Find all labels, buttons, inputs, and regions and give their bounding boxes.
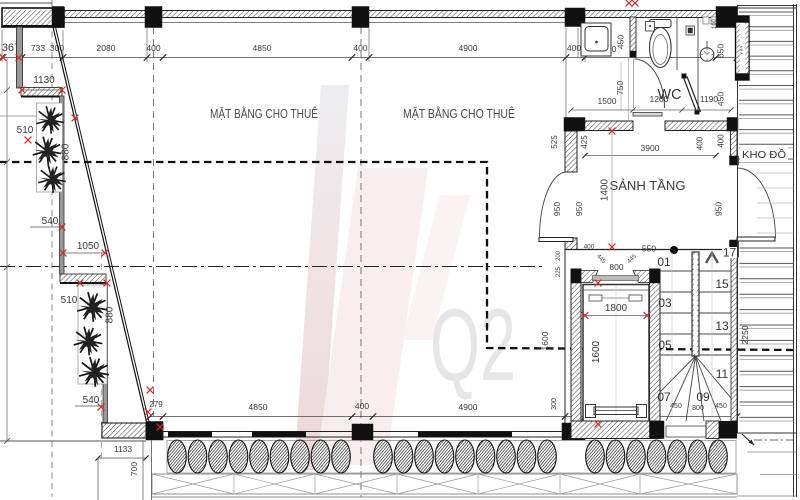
svg-text:03: 03 (658, 296, 672, 310)
svg-text:733: 733 (31, 43, 45, 53)
svg-text:1500: 1500 (598, 96, 617, 106)
svg-text:550: 550 (642, 244, 656, 254)
svg-text:SẢNH TẦNG: SẢNH TẦNG (610, 178, 686, 193)
svg-text:650: 650 (716, 44, 726, 58)
svg-text:1200: 1200 (650, 94, 669, 104)
svg-text:4850: 4850 (249, 402, 268, 412)
svg-text:4900: 4900 (459, 402, 478, 412)
svg-text:KHO ĐỒ: KHO ĐỒ (742, 148, 786, 161)
svg-text:∨∧∨: ∨∧∨ (739, 44, 744, 55)
svg-text:225: 225 (556, 266, 562, 277)
svg-text:1133: 1133 (114, 444, 133, 454)
svg-text:200: 200 (556, 250, 562, 261)
svg-text:450: 450 (715, 403, 727, 410)
svg-text:1130: 1130 (33, 75, 55, 86)
svg-text:17: 17 (723, 246, 737, 260)
svg-text:11: 11 (716, 367, 729, 381)
svg-text:800: 800 (692, 405, 704, 412)
svg-text:2250: 2250 (740, 325, 750, 344)
svg-text:400: 400 (567, 43, 581, 53)
svg-text:1600: 1600 (591, 340, 602, 363)
svg-text:400: 400 (584, 244, 595, 251)
svg-text:279: 279 (149, 400, 163, 409)
svg-text:Q2: Q2 (430, 288, 516, 402)
svg-text:950: 950 (714, 202, 724, 216)
svg-text:07: 07 (657, 390, 671, 404)
svg-text:2080: 2080 (97, 43, 116, 53)
svg-text:400: 400 (355, 401, 369, 411)
svg-text:400: 400 (696, 136, 705, 150)
svg-text:1800: 1800 (605, 303, 628, 314)
svg-text:MẶT BẰNG CHO THUÊ: MẶT BẰNG CHO THUÊ (403, 106, 515, 121)
svg-text:950: 950 (574, 202, 584, 216)
svg-text:510: 510 (61, 295, 78, 306)
svg-text:880: 880 (61, 143, 72, 160)
svg-text:05: 05 (658, 338, 672, 352)
svg-text:MẶT BẰNG CHO THUÊ: MẶT BẰNG CHO THUÊ (210, 106, 318, 121)
svg-text:4850: 4850 (253, 43, 272, 53)
svg-text:750: 750 (615, 81, 625, 95)
svg-text:4900: 4900 (459, 43, 478, 53)
svg-text:09: 09 (696, 390, 710, 404)
svg-text:450: 450 (716, 92, 726, 106)
svg-text:950: 950 (552, 202, 562, 216)
svg-text:800: 800 (609, 262, 623, 272)
svg-text:1050: 1050 (77, 241, 100, 252)
svg-text:880: 880 (105, 306, 116, 323)
svg-text:100: 100 (712, 18, 718, 29)
svg-text:425: 425 (580, 135, 589, 149)
svg-text:540: 540 (42, 216, 59, 227)
svg-text:15: 15 (715, 277, 729, 291)
svg-text:510: 510 (17, 125, 34, 136)
svg-text:1400: 1400 (600, 178, 611, 201)
svg-text:13: 13 (715, 319, 729, 333)
svg-text:400: 400 (353, 43, 367, 53)
svg-text:700: 700 (129, 462, 139, 476)
svg-text:3900: 3900 (641, 143, 660, 153)
svg-text:01: 01 (657, 255, 671, 269)
svg-text:400: 400 (146, 43, 160, 53)
svg-text:540: 540 (83, 395, 100, 406)
svg-text:400: 400 (717, 134, 726, 148)
svg-text:300: 300 (551, 398, 558, 410)
svg-text:1600: 1600 (540, 331, 550, 350)
svg-text:450: 450 (616, 35, 626, 49)
svg-text:525: 525 (550, 135, 559, 149)
